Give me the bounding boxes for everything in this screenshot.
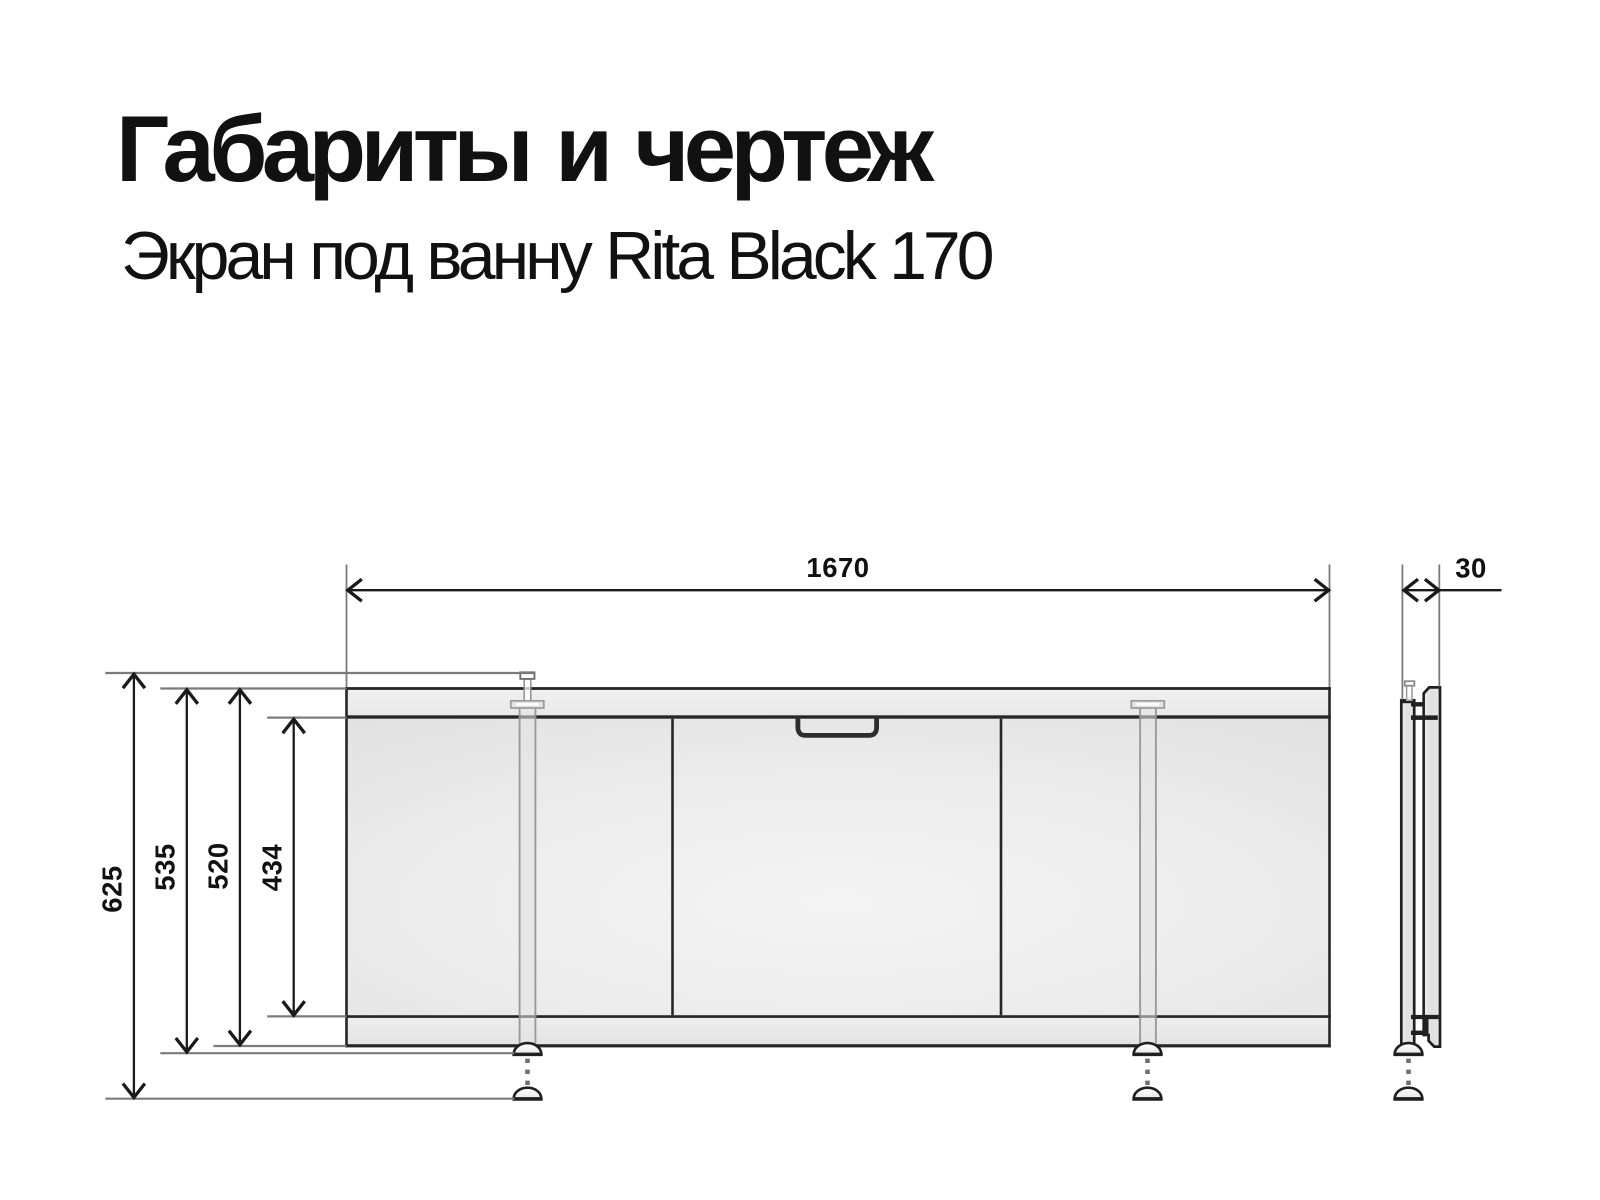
svg-text:535: 535 <box>149 843 180 890</box>
svg-text:Габариты и чертеж: Габариты и чертеж <box>116 96 935 201</box>
svg-text:1670: 1670 <box>806 552 869 583</box>
svg-text:520: 520 <box>203 842 234 889</box>
svg-text:434: 434 <box>256 844 287 892</box>
svg-text:Экран под ванну Rita Black 170: Экран под ванну Rita Black 170 <box>121 218 993 294</box>
svg-text:625: 625 <box>97 865 128 912</box>
svg-text:30: 30 <box>1455 553 1487 584</box>
